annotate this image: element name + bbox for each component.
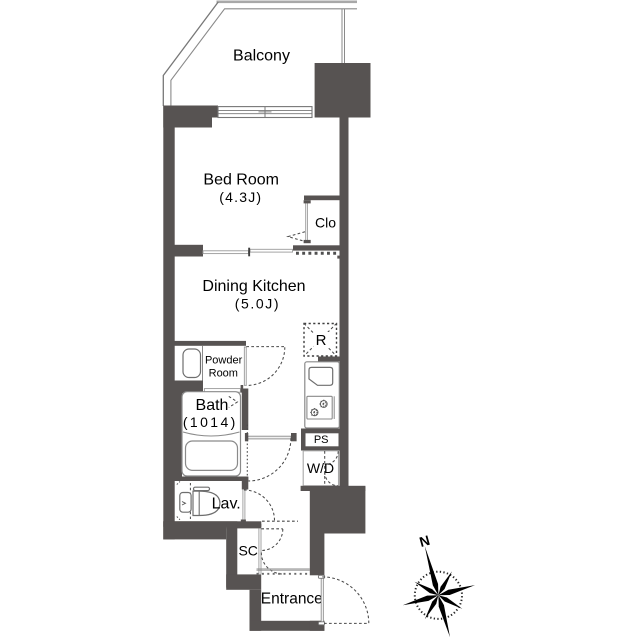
svg-text:Entrance: Entrance [261, 590, 323, 607]
svg-text:Lav.: Lav. [212, 495, 241, 512]
svg-text:R: R [316, 332, 327, 349]
svg-text:Bed Room: Bed Room [203, 172, 279, 189]
svg-text:Room: Room [209, 368, 238, 380]
svg-text:(1014): (1014) [183, 414, 238, 430]
svg-text:W/D: W/D [307, 460, 334, 476]
svg-text:Clo: Clo [315, 215, 336, 231]
svg-text:(4.3J): (4.3J) [219, 189, 262, 205]
svg-text:Dining Kitchen: Dining Kitchen [202, 278, 305, 295]
svg-text:Balcony: Balcony [233, 48, 290, 65]
svg-text:Bath: Bath [196, 397, 229, 414]
svg-text:PS: PS [314, 434, 329, 446]
svg-text:SC: SC [238, 542, 257, 558]
svg-text:(5.0J): (5.0J) [235, 295, 280, 311]
svg-text:Powder: Powder [205, 354, 243, 366]
